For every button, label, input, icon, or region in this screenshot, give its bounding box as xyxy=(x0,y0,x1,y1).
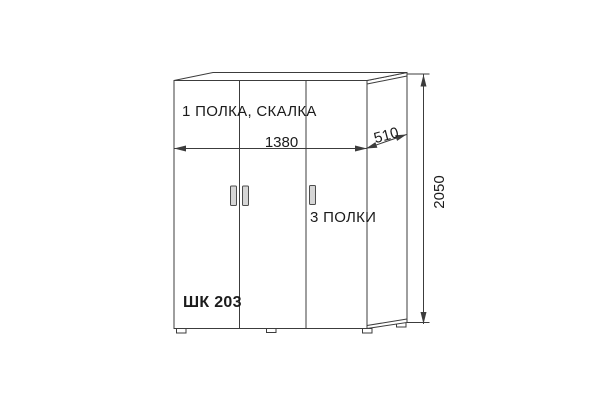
model-number-label: ШК 203 xyxy=(183,294,242,311)
right-compartment-label: 3 ПОЛКИ xyxy=(310,209,376,226)
top-compartment-label: 1 ПОЛКА, СКАЛКА xyxy=(182,103,317,120)
wardrobe-foot-middle xyxy=(267,329,277,333)
wardrobe-top-face xyxy=(174,73,407,81)
height-dimension: 2050 xyxy=(407,74,448,324)
wardrobe-feet xyxy=(177,329,373,334)
wardrobe-side-panel xyxy=(367,73,407,329)
door-handle-right xyxy=(310,186,316,205)
height-dimension-label: 2050 xyxy=(431,175,448,208)
height-arrow-top-icon xyxy=(421,75,427,87)
wardrobe-foot-right xyxy=(363,329,373,334)
drawing-svg: 1380 510 2050 1 ПОЛКА, СКАЛКА 3 ПОЛКИ ШК… xyxy=(0,0,600,405)
door-handle-left xyxy=(231,186,237,206)
width-dimension-label: 1380 xyxy=(265,134,298,151)
wardrobe-technical-drawing: 1380 510 2050 1 ПОЛКА, СКАЛКА 3 ПОЛКИ ШК… xyxy=(0,0,600,405)
door-handle-middle xyxy=(243,186,249,206)
wardrobe-foot-left xyxy=(177,329,187,334)
